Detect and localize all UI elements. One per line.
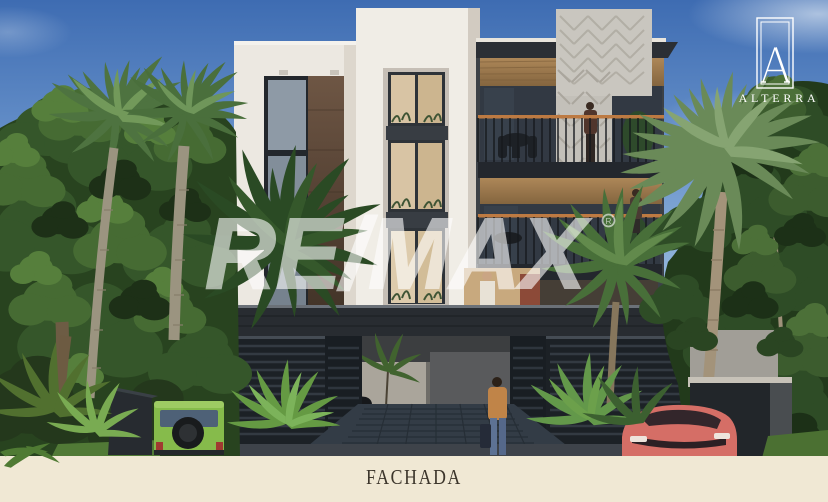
svg-text:RE/MAX: RE/MAX [205, 198, 591, 310]
svg-text:R: R [605, 216, 611, 226]
svg-text:FACHADA: FACHADA [366, 465, 462, 489]
svg-text:ALTERRA: ALTERRA [739, 91, 820, 105]
